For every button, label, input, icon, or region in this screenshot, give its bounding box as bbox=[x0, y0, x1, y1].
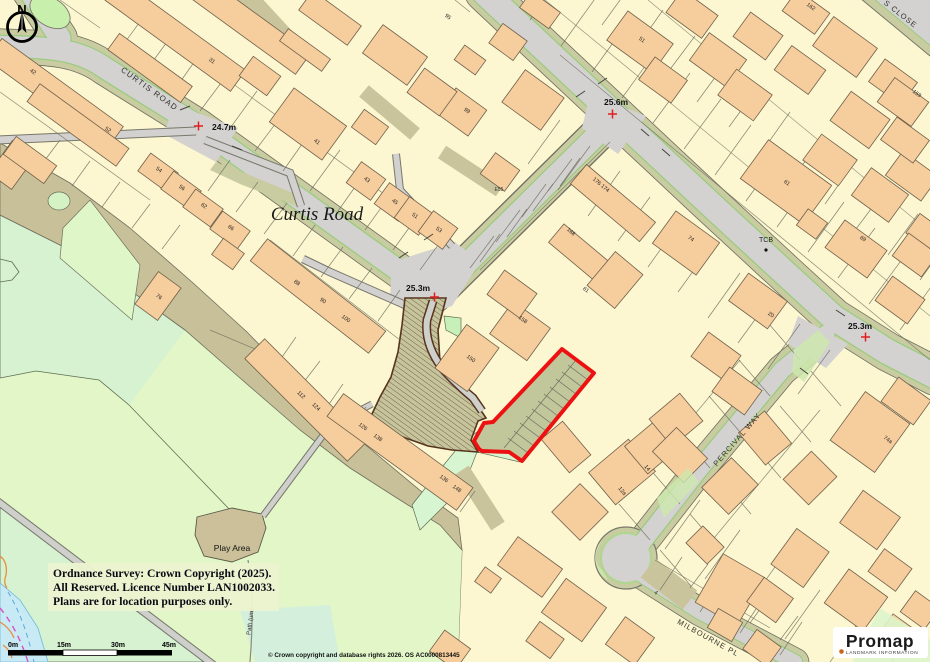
svg-text:45m: 45m bbox=[162, 642, 176, 649]
svg-text:25.6m: 25.6m bbox=[604, 97, 629, 107]
svg-text:Ordnance Survey: Crown Copyrig: Ordnance Survey: Crown Copyright (2025). bbox=[53, 567, 272, 580]
svg-text:25.3m: 25.3m bbox=[406, 283, 431, 293]
svg-text:Promap: Promap bbox=[846, 631, 914, 651]
svg-text:Plans are for location purpose: Plans are for location purposes only. bbox=[53, 595, 232, 608]
svg-text:24.7m: 24.7m bbox=[212, 122, 237, 132]
svg-text:E55: E55 bbox=[495, 187, 504, 193]
svg-text:LANDMARK INFORMATION: LANDMARK INFORMATION bbox=[846, 650, 918, 656]
svg-text:TCB: TCB bbox=[759, 237, 773, 244]
svg-text:30m: 30m bbox=[111, 642, 125, 649]
svg-text:Play Area: Play Area bbox=[214, 543, 251, 553]
svg-text:25.3m: 25.3m bbox=[848, 321, 873, 331]
svg-text:All Reserved. Licence Number: All Reserved. Licence Number LAN1002033. bbox=[53, 581, 275, 594]
svg-text:0m: 0m bbox=[8, 642, 18, 649]
svg-text:© Crown copyright and database: © Crown copyright and database rights 20… bbox=[268, 651, 460, 659]
svg-text:Curtis Road: Curtis Road bbox=[271, 204, 364, 225]
svg-text:15m: 15m bbox=[57, 642, 71, 649]
